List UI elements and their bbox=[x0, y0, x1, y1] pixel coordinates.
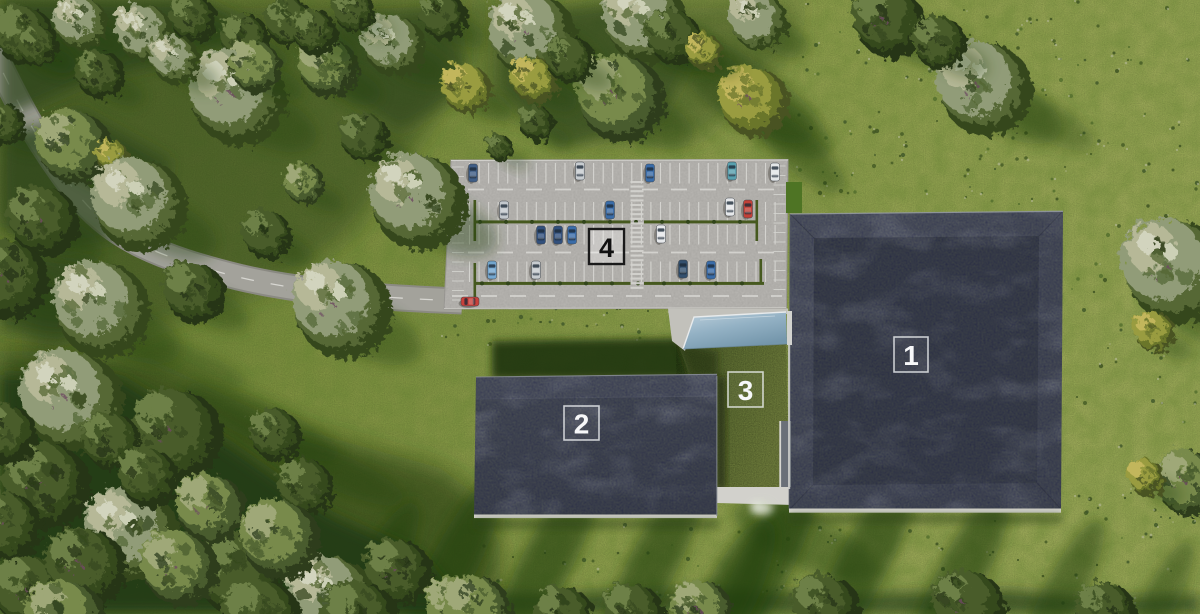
svg-text:1: 1 bbox=[903, 340, 919, 371]
svg-text:4: 4 bbox=[599, 233, 614, 263]
svg-text:2: 2 bbox=[574, 409, 590, 440]
svg-text:3: 3 bbox=[738, 375, 754, 406]
